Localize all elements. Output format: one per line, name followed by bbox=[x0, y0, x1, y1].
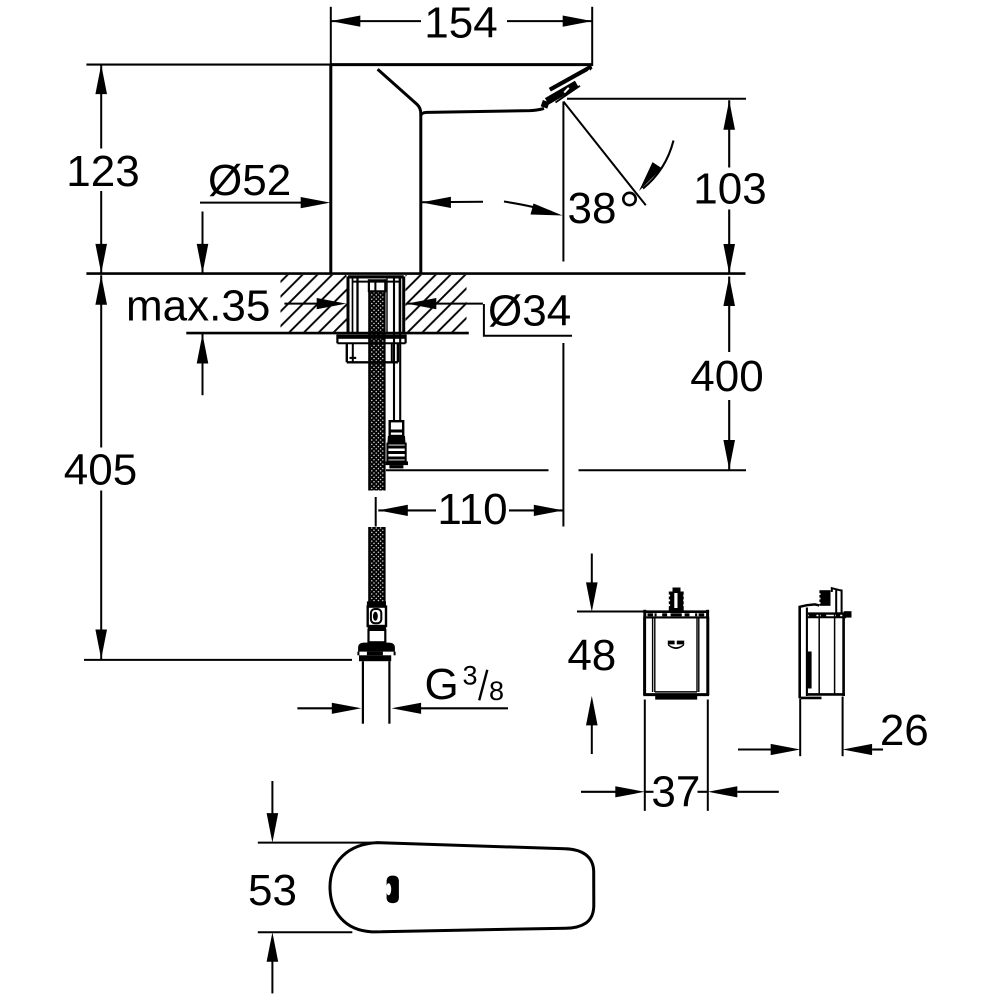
svg-text:405: 405 bbox=[64, 446, 137, 495]
svg-text:48: 48 bbox=[567, 631, 616, 680]
svg-text:8: 8 bbox=[489, 676, 504, 706]
svg-text:Ø52: Ø52 bbox=[208, 156, 291, 205]
svg-text:Ø34: Ø34 bbox=[488, 286, 571, 335]
svg-text:26: 26 bbox=[880, 706, 929, 755]
svg-text:37: 37 bbox=[651, 768, 700, 817]
svg-text:3: 3 bbox=[463, 661, 478, 691]
svg-text:G: G bbox=[425, 660, 459, 709]
svg-text:max.35: max.35 bbox=[126, 282, 270, 331]
svg-text:103: 103 bbox=[693, 165, 766, 214]
svg-text:38: 38 bbox=[568, 184, 617, 233]
svg-text:123: 123 bbox=[66, 147, 139, 196]
svg-text:53: 53 bbox=[248, 866, 297, 915]
svg-text:400: 400 bbox=[690, 352, 763, 401]
svg-text:110: 110 bbox=[437, 485, 507, 534]
svg-text:154: 154 bbox=[424, 0, 497, 47]
